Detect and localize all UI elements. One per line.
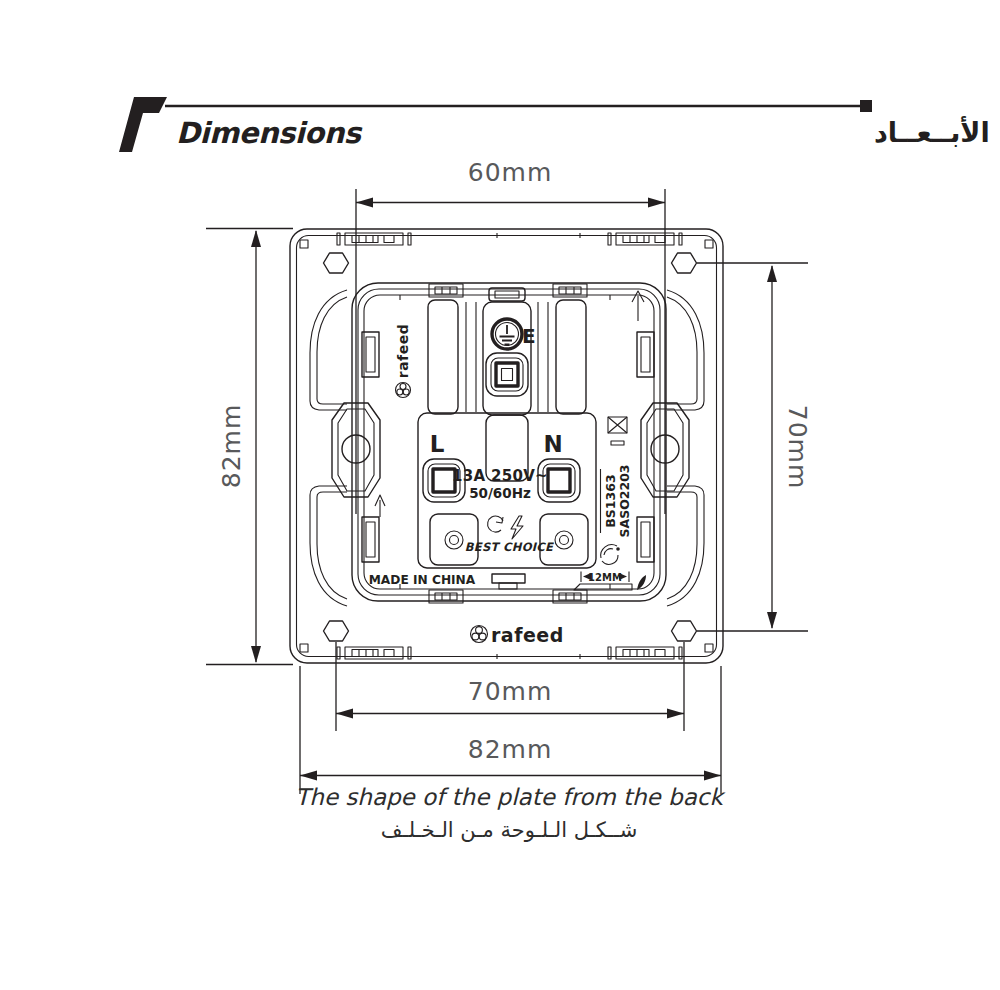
best-choice-label: BEST CHOICE (465, 540, 554, 554)
rating-line1: 13A 250V~ (452, 467, 548, 485)
brand-side: rafeed (395, 324, 411, 398)
standard-saso-label: SASO2203 (617, 464, 632, 537)
dim-label-right: 70mm (783, 405, 812, 490)
brand-bottom: rafeed (471, 624, 564, 646)
standard-bs-label: BS1363 (603, 474, 618, 527)
standards: BS1363 SASO2203 (601, 464, 633, 564)
dim-label-top: 60mm (468, 158, 553, 187)
screw-hole-top-left (324, 253, 349, 273)
header-rule-end-square (860, 100, 872, 112)
diagram-canvas: Dimensions الأبــعــاد (0, 0, 1000, 990)
header: Dimensions الأبــعــاد (119, 97, 990, 152)
earth-label: E (522, 324, 536, 348)
lightning-icon (511, 516, 523, 539)
dimension-bottom-70mm: 70mm (336, 642, 684, 731)
up-arrow-icon-left (375, 495, 385, 517)
brand-side-label: rafeed (395, 324, 411, 378)
bottom-tab (492, 574, 525, 589)
live-label: L (430, 431, 445, 457)
dimension-left-82mm: 82mm (206, 229, 293, 665)
page-title-en: Dimensions (176, 116, 363, 150)
neutral-label: N (543, 431, 562, 457)
rating-line2: 50/60Hz (469, 485, 531, 501)
circular-arrow-icon (488, 516, 503, 532)
dim-label-bottom-outer: 82mm (468, 735, 553, 764)
crossed-box-icon (608, 417, 627, 445)
plate-outline (290, 229, 723, 663)
corner-detail-bl (300, 644, 308, 652)
plate-outer-edge (290, 229, 723, 663)
edge-clip-bottom-right (608, 647, 682, 659)
screw-hole-bottom-right (672, 621, 697, 641)
mechanism: E L N 13A 250V~ 50/60Hz (310, 283, 704, 646)
flag-icon (119, 97, 167, 152)
corner-detail-br (705, 644, 713, 652)
dim-label-left: 82mm (217, 404, 246, 489)
terminal-plate: L N 13A 250V~ 50/60Hz BEST CHOICE (418, 413, 596, 568)
screw-hole-top-right (672, 253, 697, 273)
edge-clip-top-right (608, 233, 682, 245)
caption-en: The shape of the plate from the back (295, 784, 726, 810)
earth-terminal: E (486, 319, 536, 396)
dimension-right-70mm: 70mm (697, 263, 812, 631)
corner-detail-tr (705, 240, 713, 248)
brand-bottom-label: rafeed (491, 624, 564, 646)
made-in-label: MADE IN CHINA (369, 573, 476, 587)
edge-clip-bottom-left (337, 647, 411, 659)
corner-detail-tl (300, 240, 308, 248)
caption-ar: شــكـل الـلـوحة مـن الـخـلـف (381, 818, 637, 842)
strip-length-label: 12MM (588, 572, 622, 583)
page-title-ar: الأبــعــاد (874, 116, 990, 148)
edge-clip-top-left (337, 233, 411, 245)
rafeed-petal-logo-icon (471, 626, 488, 643)
dimensions-diagram-page: Dimensions الأبــعــاد (0, 0, 1000, 990)
rafeed-petal-logo-icon (396, 383, 411, 398)
dim-label-bottom-inner: 70mm (468, 677, 553, 706)
saso-quality-mark-icon (601, 545, 620, 565)
screw-hole-bottom-left (324, 621, 349, 641)
caption: The shape of the plate from the back شــ… (295, 784, 726, 842)
